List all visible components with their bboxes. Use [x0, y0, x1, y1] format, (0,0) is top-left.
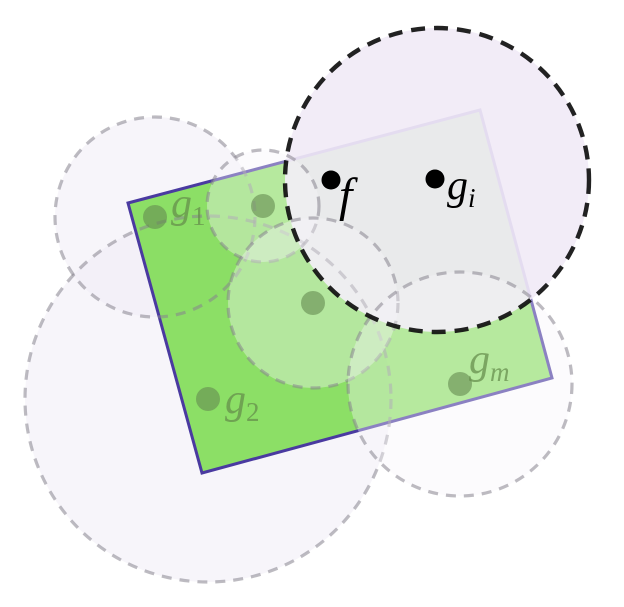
label-g2-subscript: 2	[246, 397, 260, 427]
dot-g1	[143, 205, 167, 229]
label-g1-main: g	[171, 181, 192, 227]
label-g1-subscript: 1	[192, 201, 206, 231]
dot-g2	[196, 387, 220, 411]
point-gi	[426, 170, 445, 189]
label-g2-main: g	[225, 377, 246, 423]
dot-unlabeled-center	[301, 291, 325, 315]
point-f	[322, 171, 341, 190]
label-gm-main: g	[469, 337, 490, 383]
label-gm-subscript: m	[490, 357, 510, 387]
label-gi-main: g	[447, 163, 468, 209]
dot-unlabeled-top	[251, 194, 275, 218]
label-gi-subscript: i	[468, 183, 476, 213]
geometry-diagram: fgig1g2gm	[0, 0, 624, 607]
figure-canvas: fgig1g2gm	[0, 0, 624, 607]
